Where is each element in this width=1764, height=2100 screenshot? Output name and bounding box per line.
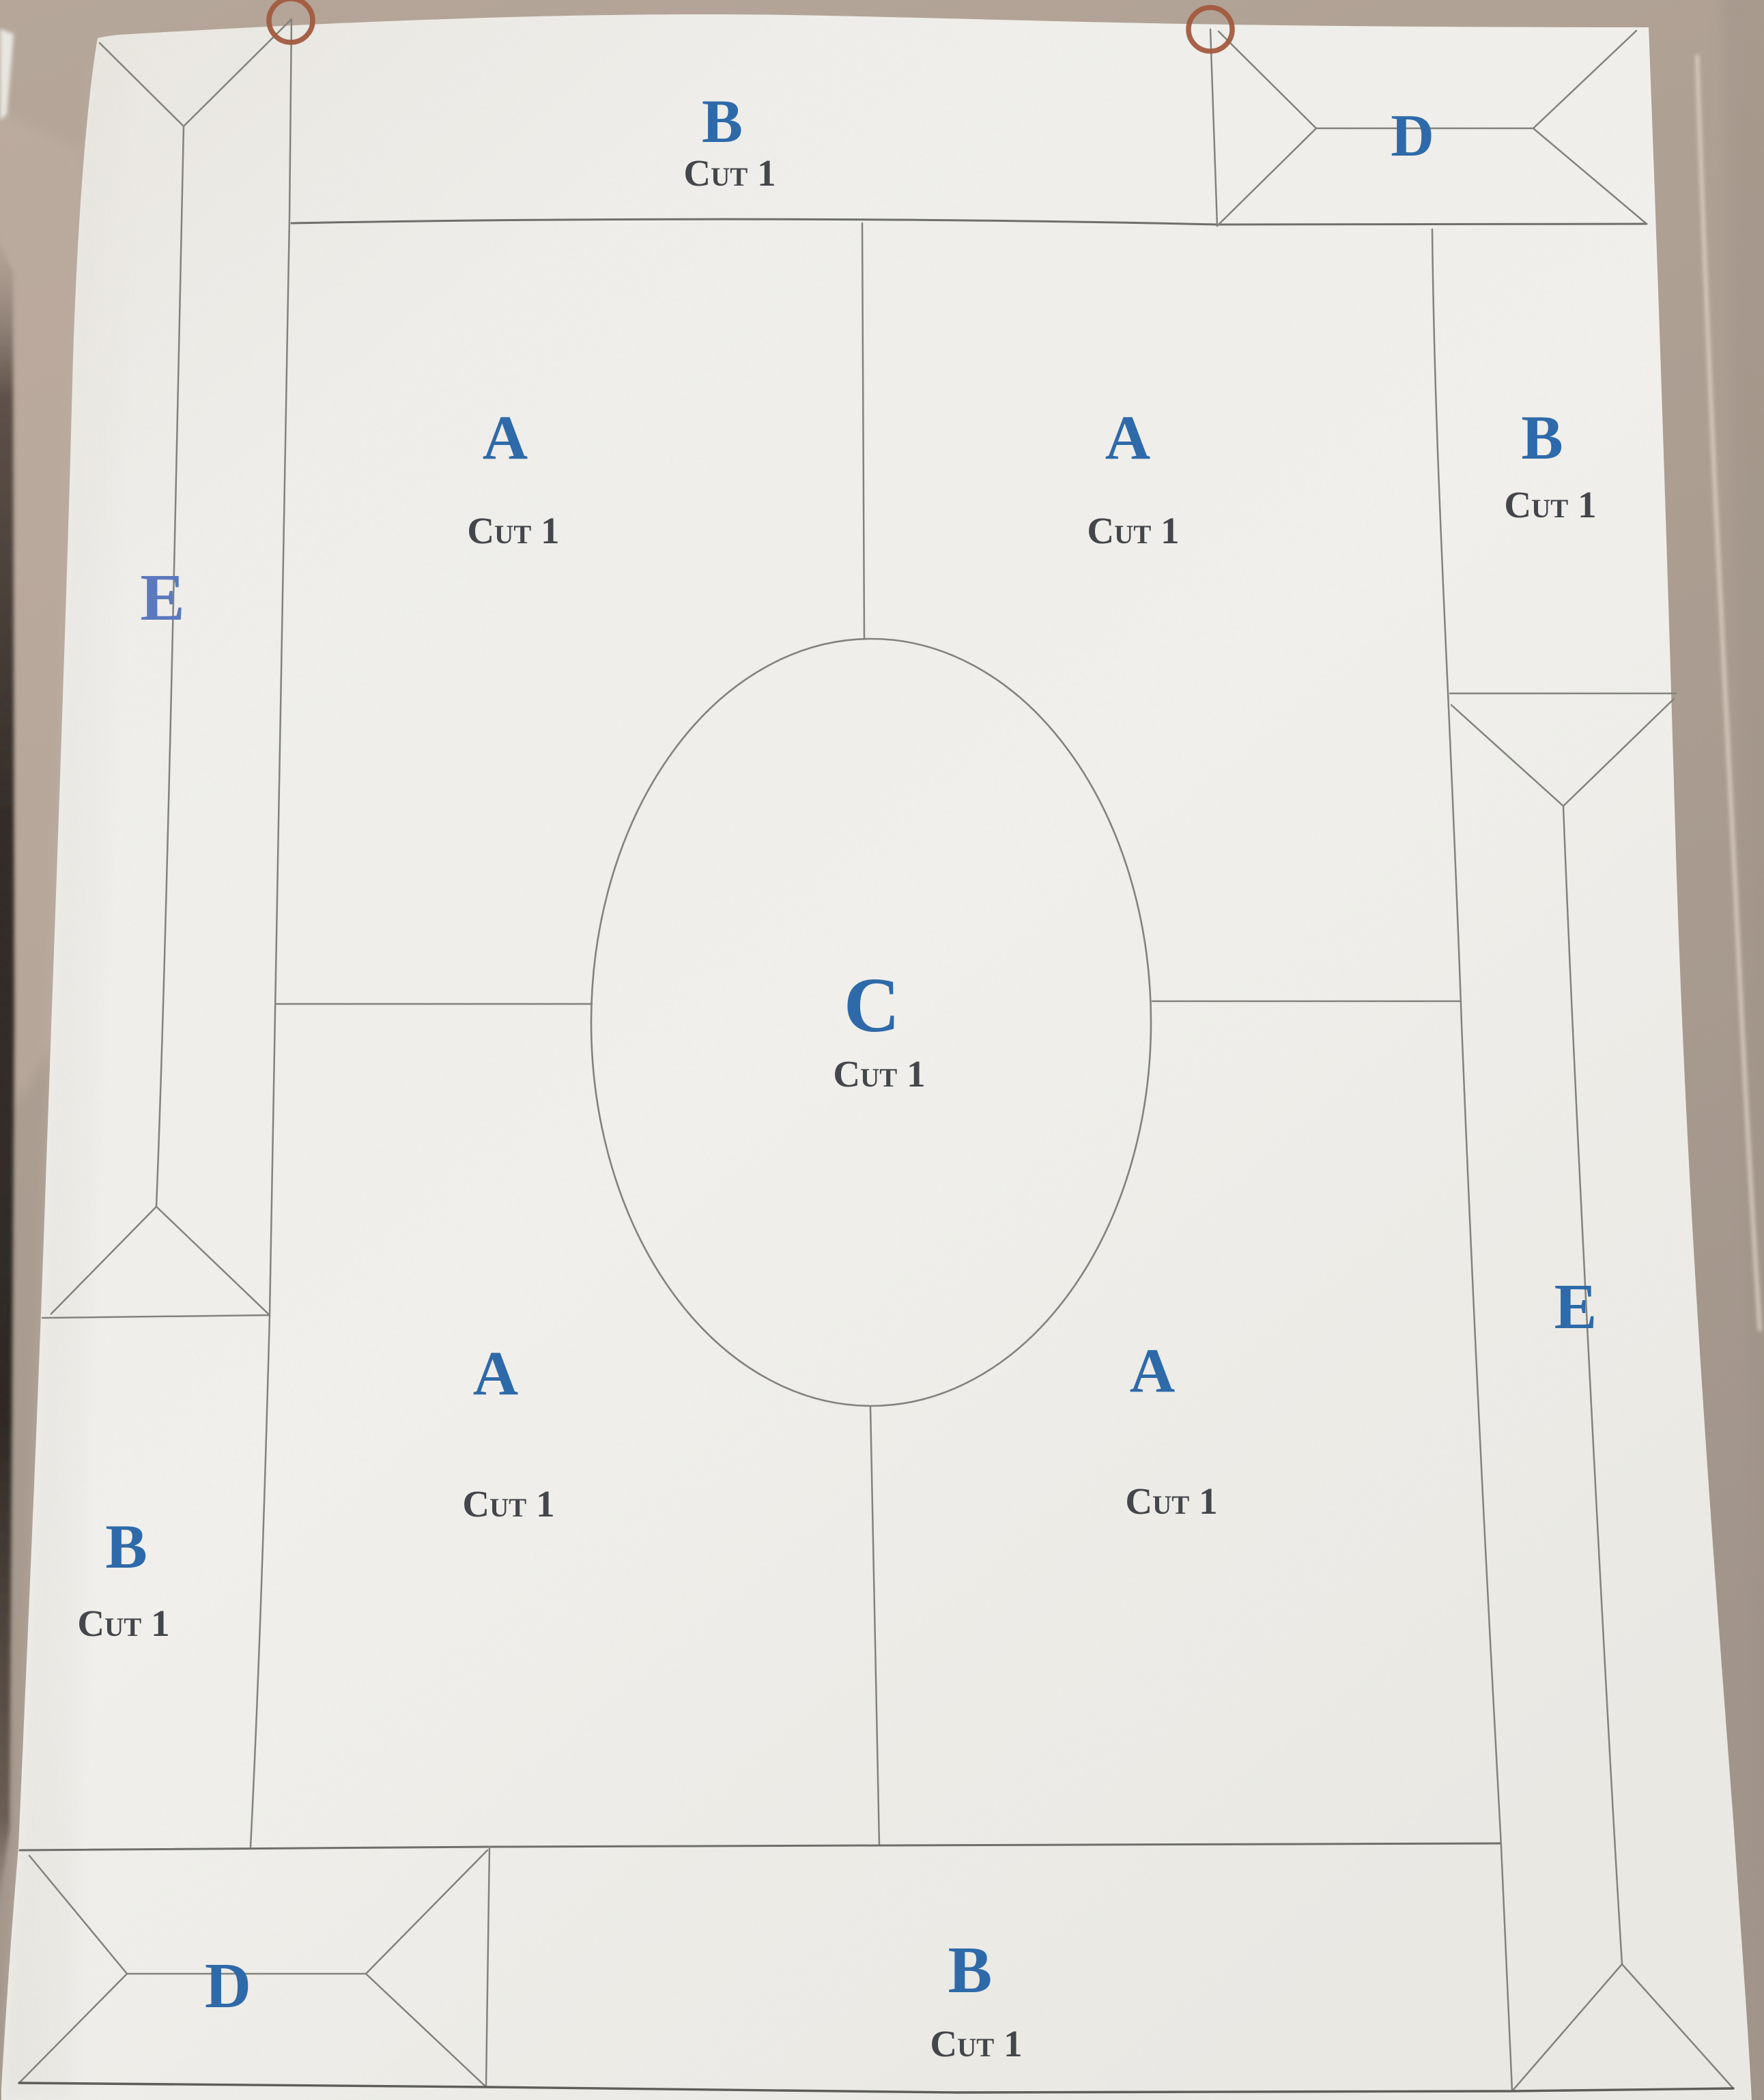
svg-text:B: B (105, 1512, 147, 1581)
svg-text:C: C (844, 962, 900, 1048)
svg-text:Cut 1: Cut 1 (77, 1602, 169, 1644)
svg-text:E: E (140, 561, 184, 635)
svg-text:E: E (1554, 1271, 1597, 1342)
svg-text:Cut 1: Cut 1 (1087, 510, 1179, 551)
svg-text:B: B (948, 1933, 993, 2006)
svg-text:B: B (1521, 403, 1563, 472)
svg-text:Cut 1: Cut 1 (462, 1483, 554, 1525)
svg-text:Cut 1: Cut 1 (1504, 484, 1596, 526)
svg-text:Cut 1: Cut 1 (1125, 1480, 1217, 1522)
svg-text:A: A (1130, 1336, 1175, 1405)
svg-text:B: B (702, 88, 743, 156)
svg-text:A: A (483, 403, 528, 472)
svg-text:A: A (473, 1338, 518, 1408)
svg-text:Cut 1: Cut 1 (683, 152, 776, 194)
svg-text:Cut 1: Cut 1 (833, 1053, 925, 1095)
svg-text:Cut 1: Cut 1 (467, 510, 559, 551)
svg-text:D: D (205, 1951, 251, 2022)
svg-text:A: A (1105, 403, 1150, 472)
svg-text:Cut 1: Cut 1 (930, 2023, 1022, 2065)
svg-text:D: D (1391, 103, 1434, 169)
